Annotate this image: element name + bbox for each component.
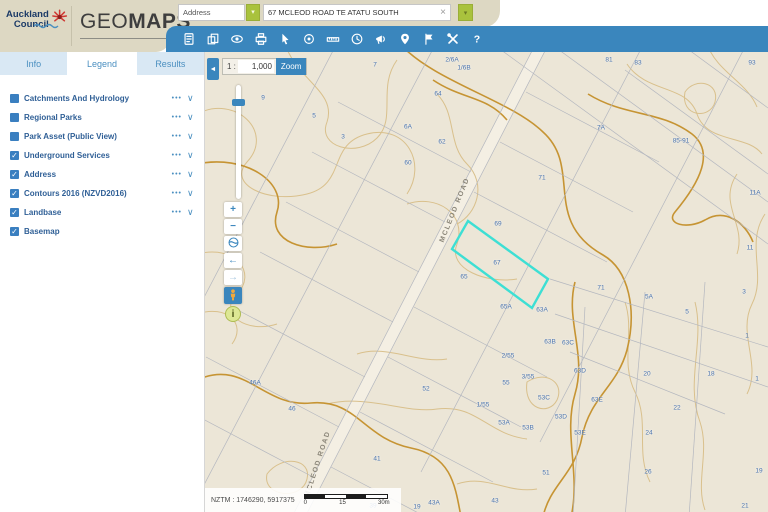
scale-input[interactable] [238,60,274,73]
zoom-slider[interactable] [236,85,241,199]
announcements-button[interactable] [372,30,389,48]
scalebar-tick: 0 [304,500,307,506]
layer-row: ✓ Address ••• ∨ [10,165,196,184]
app-header: AucklandCouncil GEOMAPS Address ▾ × ▾ [0,0,768,52]
street-view-button[interactable] [224,287,242,304]
bookmark-button[interactable] [420,30,437,48]
toolbar: ? [166,26,768,52]
layer-menu-icon[interactable]: ••• [172,114,182,121]
layer-row: ✓ Landbase ••• ∨ [10,203,196,222]
chevron-down-icon[interactable]: ∨ [187,112,196,123]
info-button[interactable]: i [225,306,241,322]
zoom-slider-handle[interactable] [232,99,245,106]
globe-icon [227,236,240,249]
layer-menu-icon[interactable]: ••• [172,209,182,216]
chevron-down-icon[interactable]: ∨ [187,188,196,199]
layer-checkbox[interactable] [10,132,19,141]
full-extent-button[interactable] [224,236,242,251]
copy-map-button[interactable] [204,30,221,48]
layer-row: Catchments And Hydrology ••• ∨ [10,89,196,108]
layer-menu-icon[interactable]: ••• [172,95,182,102]
chevron-down-icon[interactable]: ∨ [187,169,196,180]
copy-map-icon [206,32,220,46]
map-scalebar: 0 15 30m [304,494,390,506]
scale-widget: 1 : Zoom [222,58,307,75]
next-extent-button[interactable]: → [224,270,242,285]
layer-menu-icon[interactable]: ••• [172,152,182,159]
highlighted-parcel[interactable] [452,221,548,308]
tools-icon [446,32,460,46]
chevron-down-icon[interactable]: ∨ [187,93,196,104]
sidebar-tab[interactable]: Results [137,52,204,75]
zoom-button[interactable]: Zoom [276,58,306,75]
layer-label: Regional Parks [24,113,172,122]
help-icon: ? [470,32,484,46]
scalebar-segments [304,494,388,499]
logo-wave-icon [34,22,60,29]
flag-icon [422,32,436,46]
sidebar: Info Legend Results Catchments And Hydro… [0,52,205,512]
chevron-down-icon[interactable]: ∨ [187,207,196,218]
clock-icon [350,32,364,46]
scale-prefix: 1 : [227,62,236,71]
coordinates-readout: NZTM : 1746290, 5917375 [211,497,295,504]
property-report-icon [182,32,196,46]
layer-row: Park Asset (Public View) ••• ∨ [10,127,196,146]
layer-label: Contours 2016 (NZVD2016) [24,189,172,198]
chevron-down-icon[interactable]: ∨ [187,131,196,142]
layer-label: Basemap [24,227,182,236]
sidebar-tab[interactable]: Legend [68,52,135,75]
map-pin-icon [398,32,412,46]
megaphone-icon [374,32,388,46]
scalebar-ticks: 0 15 30m [304,500,390,506]
layer-checkbox[interactable] [10,94,19,103]
add-pin-button[interactable] [396,30,413,48]
layer-label: Address [24,170,172,179]
show-hide-button[interactable] [228,30,245,48]
zoom-in-button[interactable]: + [224,202,242,217]
header-divider [71,6,72,46]
layer-menu-icon[interactable]: ••• [172,133,182,140]
svg-text:?: ? [473,34,479,46]
layer-label: Park Asset (Public View) [24,132,172,141]
layer-checkbox[interactable]: ✓ [10,208,19,217]
search-go-button[interactable]: ▾ [458,4,473,21]
layer-row: ✓ Underground Services ••• ∨ [10,146,196,165]
tools-button[interactable] [444,30,461,48]
layer-checkbox[interactable]: ✓ [10,151,19,160]
sidebar-tab[interactable]: Info [0,52,67,75]
map-canvas[interactable]: 97532/6A1/6B646A62607181839385-917A11A11… [205,52,768,512]
layer-menu-icon[interactable]: ••• [172,171,182,178]
geomaps-app: AucklandCouncil GEOMAPS Address ▾ × ▾ [0,0,768,512]
cursor-icon [278,32,292,46]
print-icon [254,32,268,46]
scalebar-tick: 30m [378,500,390,506]
previous-extent-button[interactable]: ← [224,253,242,268]
layer-list: Catchments And Hydrology ••• ∨ Regional … [0,75,204,241]
print-button[interactable] [252,30,269,48]
target-icon [302,32,316,46]
locate-button[interactable] [300,30,317,48]
layer-row: ✓ Basemap [10,222,196,241]
layer-checkbox[interactable]: ✓ [10,170,19,179]
search-box: × [263,4,451,21]
clear-search-icon[interactable]: × [440,8,446,18]
ruler-icon [326,32,340,46]
sidebar-tabs: Info Legend Results [0,52,204,75]
app-title-geo: GEO [80,10,128,33]
layer-label: Landbase [24,208,172,217]
search-category-select[interactable]: Address [178,4,245,21]
cadastre-lines [205,52,768,512]
contour-lines [205,52,765,510]
zoom-out-button[interactable]: − [224,219,242,234]
search-input[interactable] [268,8,440,17]
scalebar-tick: 15 [339,500,346,506]
layer-row: ✓ Contours 2016 (NZVD2016) ••• ∨ [10,184,196,203]
select-button[interactable] [276,30,293,48]
pegman-icon [226,288,240,302]
category-dropdown-button[interactable]: ▾ [246,4,260,21]
property-report-button[interactable] [180,30,197,48]
map-statusbar: NZTM : 1746290, 5917375 0 15 30m [205,488,401,512]
index-contour-lines [205,52,753,512]
help-button[interactable]: ? [468,30,485,48]
collapse-sidebar-button[interactable]: ◄ [207,58,219,80]
layer-label: Catchments And Hydrology [24,94,172,103]
measure-button[interactable] [324,30,341,48]
chevron-down-icon[interactable]: ∨ [187,150,196,161]
basemap-svg [205,52,768,512]
layer-checkbox[interactable]: ✓ [10,189,19,198]
layer-checkbox[interactable] [10,113,19,122]
history-button[interactable] [348,30,365,48]
eye-icon [230,32,244,46]
layer-checkbox[interactable]: ✓ [10,227,19,236]
layer-menu-icon[interactable]: ••• [172,190,182,197]
layer-label: Underground Services [24,151,172,160]
layer-row: Regional Parks ••• ∨ [10,108,196,127]
map-controls: + − ← → i [224,202,242,322]
